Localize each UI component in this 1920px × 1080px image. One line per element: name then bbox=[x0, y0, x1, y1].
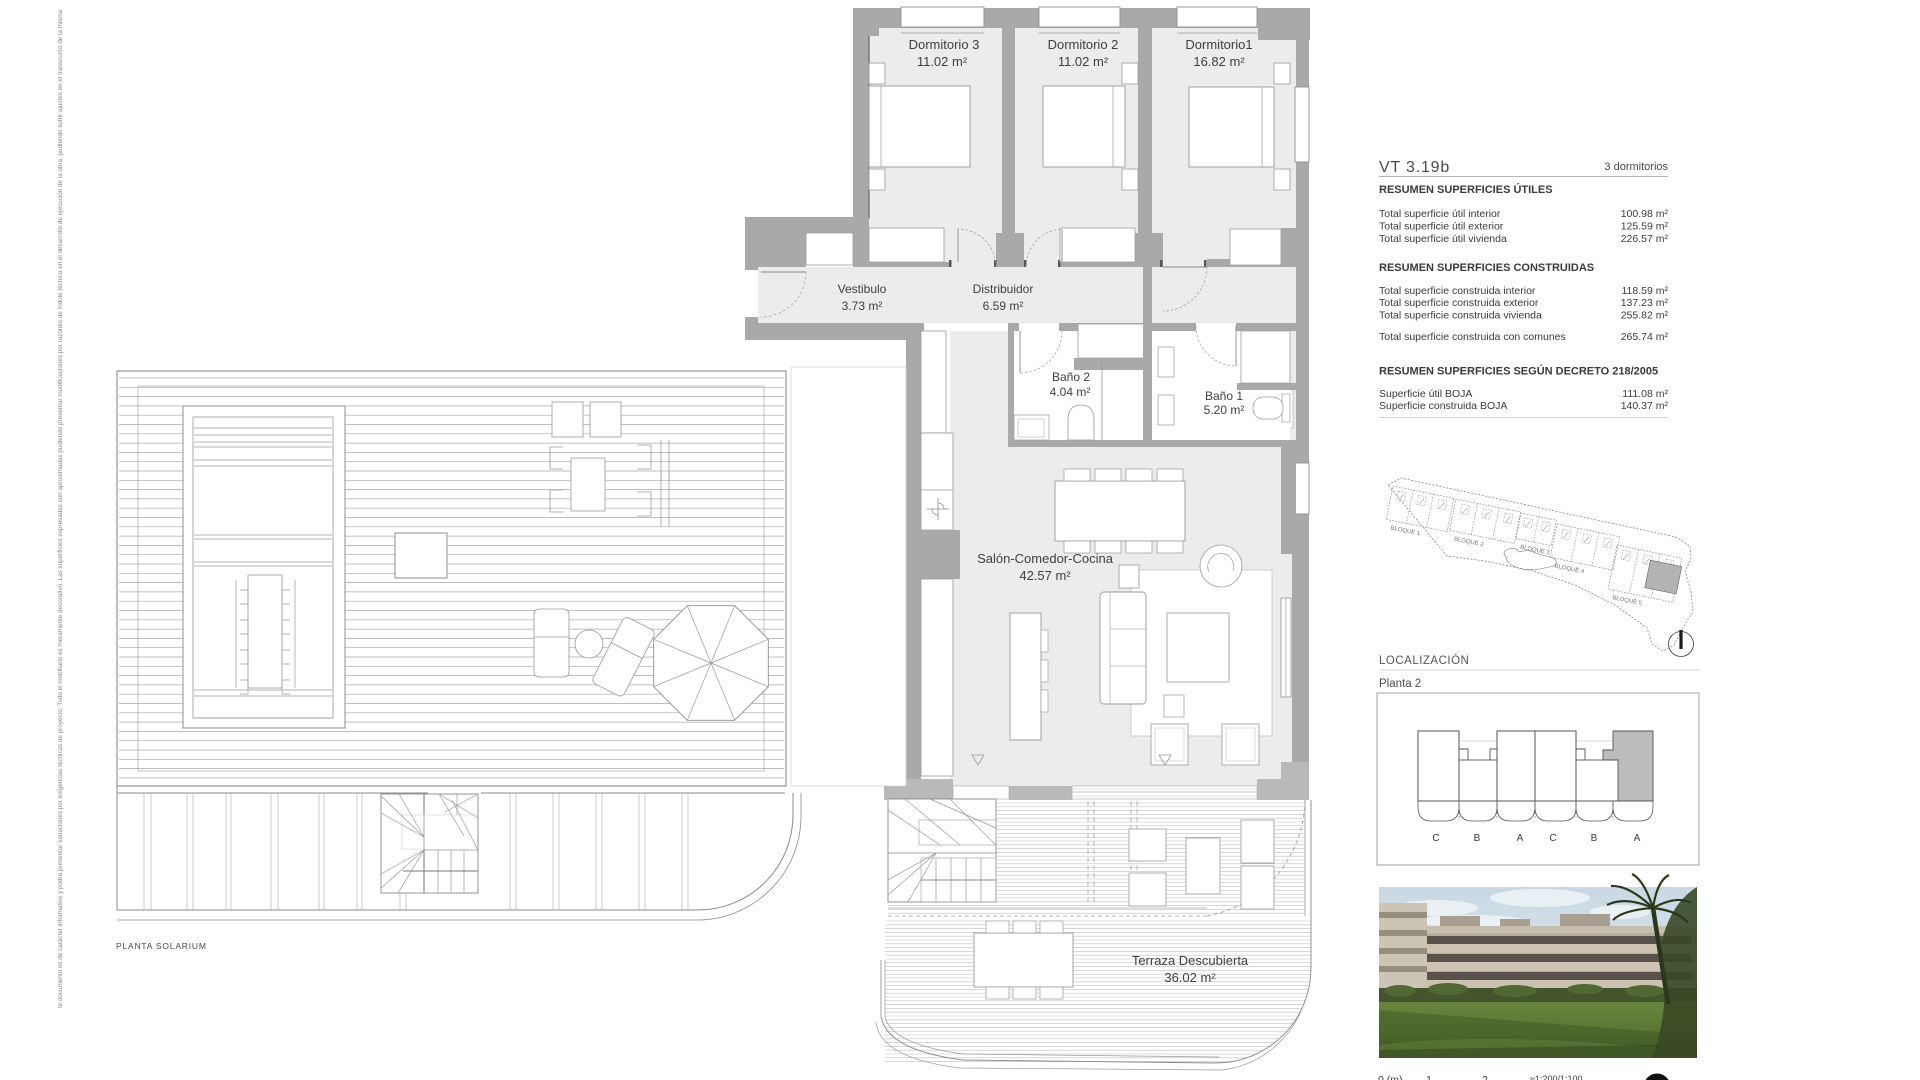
svg-text:3 dormitorios: 3 dormitorios bbox=[1604, 161, 1668, 173]
svg-text:VT 3.19b: VT 3.19b bbox=[1379, 159, 1450, 176]
svg-text:Salón-Comedor-Cocina: Salón-Comedor-Cocina bbox=[977, 551, 1114, 566]
svg-text:11.02 m²: 11.02 m² bbox=[917, 54, 968, 69]
svg-text:Dormitorio1: Dormitorio1 bbox=[1185, 37, 1252, 52]
svg-text:226.57 m²: 226.57 m² bbox=[1621, 233, 1669, 245]
svg-text:16.82 m²: 16.82 m² bbox=[1193, 54, 1245, 69]
svg-text:118.59 m²: 118.59 m² bbox=[1622, 285, 1669, 297]
svg-text:A: A bbox=[1634, 833, 1641, 844]
svg-text:1: 1 bbox=[1426, 1074, 1432, 1080]
svg-text:265.74 m²: 265.74 m² bbox=[1621, 331, 1669, 343]
svg-text:Superficie construida BOJA: Superficie construida BOJA bbox=[1379, 400, 1507, 412]
svg-text:137.23 m²: 137.23 m² bbox=[1621, 297, 1669, 309]
svg-text:RESUMEN SUPERFICIES CONSTRUIDA: RESUMEN SUPERFICIES CONSTRUIDAS bbox=[1379, 262, 1594, 274]
svg-text:B: B bbox=[1474, 833, 1481, 844]
svg-text:Planta 2: Planta 2 bbox=[1379, 678, 1421, 690]
svg-text:140.37 m²: 140.37 m² bbox=[1621, 400, 1669, 412]
svg-text:2: 2 bbox=[1482, 1074, 1488, 1080]
svg-text:Superficie útil BOJA: Superficie útil BOJA bbox=[1379, 388, 1472, 400]
svg-text:125.59 m²: 125.59 m² bbox=[1621, 221, 1669, 233]
svg-text:5.20 m²: 5.20 m² bbox=[1204, 403, 1245, 417]
svg-text:Terraza Descubierta: Terraza Descubierta bbox=[1132, 953, 1249, 968]
svg-text:≈1:200/1:100: ≈1:200/1:100 bbox=[1530, 1074, 1582, 1080]
svg-text:3.73 m²: 3.73 m² bbox=[842, 299, 883, 313]
svg-text:Total superficie construida co: Total superficie construida con comunes bbox=[1379, 331, 1566, 343]
svg-text:Total superficie construida in: Total superficie construida interior bbox=[1379, 285, 1536, 297]
svg-text:Baño 1: Baño 1 bbox=[1205, 389, 1243, 403]
svg-text:Total superficie útil vivienda: Total superficie útil vivienda bbox=[1379, 233, 1507, 245]
svg-text:Total superficie construida ex: Total superficie construida exterior bbox=[1379, 297, 1539, 309]
svg-text:Total superficie útil interior: Total superficie útil interior bbox=[1379, 208, 1501, 220]
svg-text:PLANTA SOLARIUM: PLANTA SOLARIUM bbox=[116, 941, 207, 951]
svg-text:RESUMEN SUPERFICIES SEGÚN DECR: RESUMEN SUPERFICIES SEGÚN DECRETO 218/20… bbox=[1379, 365, 1658, 378]
svg-text:6.59 m²: 6.59 m² bbox=[983, 299, 1024, 313]
svg-text:42.57 m²: 42.57 m² bbox=[1019, 568, 1071, 583]
svg-text:C: C bbox=[1549, 833, 1556, 844]
svg-text:0 (m): 0 (m) bbox=[1378, 1074, 1403, 1080]
svg-text:LOCALIZACIÓN: LOCALIZACIÓN bbox=[1379, 654, 1469, 667]
svg-text:Vestibulo: Vestibulo bbox=[838, 282, 887, 296]
svg-text:Total superficie útil exterior: Total superficie útil exterior bbox=[1379, 221, 1504, 233]
svg-text:te documento es de carácter in: te documento es de carácter informativo … bbox=[57, 9, 64, 1008]
svg-text:RESUMEN SUPERFICIES ÚTILES: RESUMEN SUPERFICIES ÚTILES bbox=[1379, 183, 1553, 196]
svg-text:C: C bbox=[1432, 833, 1439, 844]
svg-text:100.98 m²: 100.98 m² bbox=[1621, 208, 1669, 220]
svg-text:36.02 m²: 36.02 m² bbox=[1164, 970, 1216, 985]
svg-text:Baño 2: Baño 2 bbox=[1052, 370, 1090, 384]
svg-text:Total superficie construida vi: Total superficie construida vivienda bbox=[1379, 310, 1542, 322]
svg-text:4.04 m²: 4.04 m² bbox=[1050, 385, 1091, 399]
svg-text:B: B bbox=[1591, 833, 1598, 844]
svg-text:255.82 m²: 255.82 m² bbox=[1621, 310, 1669, 322]
svg-text:Distribuidor: Distribuidor bbox=[973, 282, 1034, 296]
svg-text:111.08 m²: 111.08 m² bbox=[1622, 388, 1668, 400]
svg-text:Dormitorio 2: Dormitorio 2 bbox=[1048, 37, 1119, 52]
svg-text:A: A bbox=[1517, 833, 1524, 844]
svg-text:11.02 m²: 11.02 m² bbox=[1058, 54, 1109, 69]
svg-text:Dormitorio 3: Dormitorio 3 bbox=[909, 37, 980, 52]
